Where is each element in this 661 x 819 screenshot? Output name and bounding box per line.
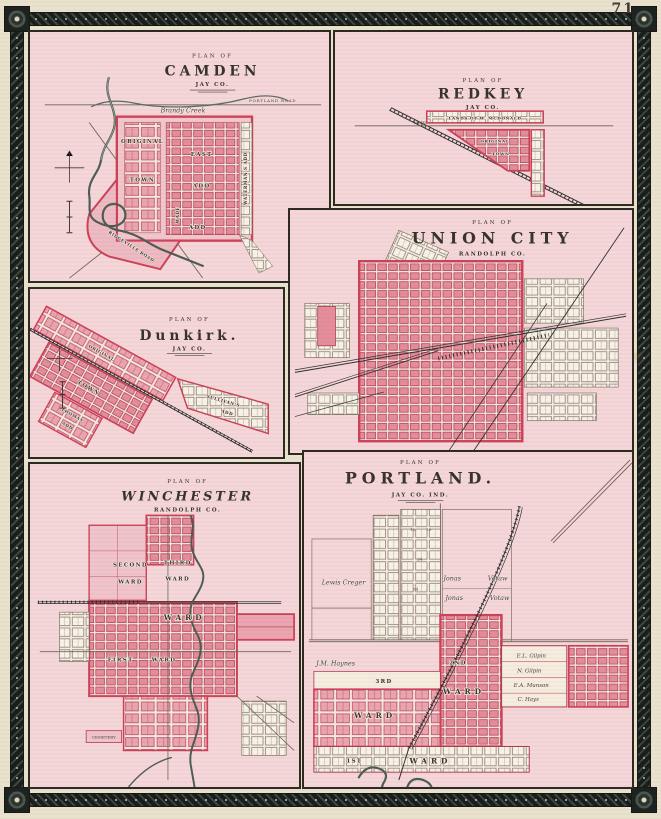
portland-label-3rd-ward: WARD: [353, 711, 396, 720]
camden-road-label: PORTLAND ROAD: [249, 98, 296, 103]
portland-label-jonas-b: Jonas: [443, 594, 463, 602]
winchester-label-third-ward: WARD: [164, 577, 190, 583]
winchester-cemetery: CEMETERY: [86, 731, 121, 743]
portland-label-n-gilpin: N. Gilpin: [516, 668, 542, 674]
camden-title-text: CAMDEN: [165, 63, 261, 79]
winchester-label-first-ward: WARD: [151, 658, 177, 664]
panel-union-city: PLAN OF UNION CITY RANDOLPH CO.: [288, 208, 634, 455]
winchester-label-ward: WARD: [163, 613, 206, 622]
winchester-plat: [60, 515, 295, 755]
panel-dunkirk: PLAN OF Dunkirk. JAY CO. ORIGINAL TOWN T…: [28, 287, 285, 459]
portland-title-text: PORTLAND.: [345, 469, 496, 488]
winchester-plan-of: PLAN OF: [167, 479, 208, 485]
redkey-plat: [427, 111, 544, 196]
portland-label-1st: 1ST: [346, 758, 362, 764]
portland-label-2nd-ward: WARD: [442, 687, 485, 696]
winchester-label-third: THIRD: [164, 561, 192, 567]
portland-label-ea-munson: E.A. Munson: [513, 683, 550, 689]
winchester-label-second-ward: WARD: [117, 580, 143, 586]
portland-label-lewis-creger: Lewis Creger: [321, 578, 367, 586]
camden-subtitle: JAY CO.: [195, 82, 230, 88]
dunkirk-sullivans-add: SULLIVAN'S ADD: [178, 379, 269, 434]
dunkirk-plan-of: PLAN OF: [169, 317, 210, 323]
redkey-label-original: ORIGINAL: [480, 138, 509, 143]
camden-label-wade: WADE: [175, 207, 180, 225]
winchester-label-cemetery: CEMETERY: [92, 735, 116, 740]
camden-label-town: TOWN: [130, 178, 155, 184]
redkey-label-town: TOWN: [492, 151, 509, 156]
camden-label-east: EAST: [191, 152, 213, 158]
union-city-plat: [305, 230, 618, 441]
portland-map: PLAN OF PORTLAND. JAY CO. IND.: [304, 452, 632, 787]
portland-label-2nd: 2ND: [449, 660, 467, 666]
portland-label-1st-ward: WARD: [408, 756, 451, 765]
union-city-title-text: UNION CITY: [412, 228, 574, 247]
camden-label-east-add: ADD: [192, 184, 211, 190]
union-city-subtitle: RANDOLPH CO.: [459, 251, 527, 257]
portland-label-el-gilpin: E.L. Gilpin: [516, 654, 547, 660]
border-corner-ornament: [4, 787, 30, 813]
winchester-label-first: FIRST: [108, 658, 134, 664]
lot-number: 54: [413, 586, 419, 591]
dunkirk-title-text: Dunkirk.: [140, 328, 240, 344]
portland-subtitle: JAY CO. IND.: [391, 492, 450, 498]
dunkirk-plat: ORIGINAL TOWN THOMAS ADD: [30, 295, 266, 457]
winchester-title-text: WINCHESTER: [121, 490, 254, 505]
camden-compass-rose: [55, 151, 85, 182]
redkey-subtitle: JAY CO.: [465, 105, 500, 111]
camden-creek-label: Brandy Creek: [160, 107, 206, 115]
redkey-plan-of: PLAN OF: [462, 78, 503, 84]
camden-label-watermans: WATERMAN'S ADD: [243, 152, 248, 206]
camden-label-original: ORIGINAL: [121, 139, 164, 145]
redkey-label-lands: LANDS OF W. MCDONALD: [448, 115, 521, 120]
page-number: 71: [612, 1, 635, 17]
border-band-bottom: [10, 793, 651, 807]
scale-bar: [67, 201, 73, 232]
winchester-title: PLAN OF WINCHESTER RANDOLPH CO.: [121, 479, 254, 514]
lot-number: 18: [410, 527, 416, 532]
portland-label-c-hays: C. Hays: [518, 697, 539, 703]
lot-number: 34: [417, 557, 423, 562]
panel-redkey: PLAN OF REDKEY JAY CO. MAIN LANDS OF W. …: [333, 30, 634, 206]
winchester-subtitle: RANDOLPH CO.: [154, 507, 221, 513]
portland-label-jonas-a: Jonas: [441, 574, 461, 582]
union-city-map: PLAN OF UNION CITY RANDOLPH CO.: [290, 210, 632, 453]
camden-map: PLAN OF CAMDEN JAY CO. PORTLAND ROAD Bra…: [30, 32, 329, 281]
border-corner-ornament: [631, 787, 657, 813]
winchester-map: PLAN OF WINCHESTER RANDOLPH CO.: [30, 464, 299, 787]
portland-title: PLAN OF PORTLAND. JAY CO. IND.: [345, 460, 496, 503]
camden-title: PLAN OF CAMDEN JAY CO.: [165, 54, 261, 92]
redkey-title-text: REDKEY: [438, 87, 528, 103]
redkey-label-main: MAIN: [414, 120, 426, 125]
border-corner-ornament: [4, 6, 30, 32]
lot-number: 19: [426, 527, 432, 532]
winchester-label-second: SECOND: [113, 563, 148, 569]
portland-plan-of: PLAN OF: [400, 460, 441, 466]
panel-portland: PLAN OF PORTLAND. JAY CO. IND.: [302, 450, 634, 789]
portland-label-3rd: 3RD: [375, 679, 392, 685]
portland-label-votaw-a: Votaw: [488, 574, 508, 582]
camden-plan-of: PLAN OF: [192, 54, 233, 60]
union-city-plan-of: PLAN OF: [472, 220, 513, 226]
camden-label-wade-add: ADD: [188, 225, 207, 231]
dunkirk-subtitle: JAY CO.: [172, 347, 207, 353]
dunkirk-title: PLAN OF Dunkirk. JAY CO.: [140, 317, 240, 355]
portland-label-jm-haynes: J.M. Haynes: [314, 659, 356, 667]
border-band-top: [10, 12, 651, 26]
panel-camden: PLAN OF CAMDEN JAY CO. PORTLAND ROAD Bra…: [28, 30, 331, 283]
flourish: [190, 90, 235, 92]
portland-label-votaw-b: Votaw: [490, 594, 510, 602]
dunkirk-map: PLAN OF Dunkirk. JAY CO. ORIGINAL TOWN T…: [30, 289, 283, 457]
panel-winchester: PLAN OF WINCHESTER RANDOLPH CO.: [28, 462, 301, 789]
flourish: [167, 353, 212, 355]
border-band-right: [637, 12, 651, 807]
redkey-map: PLAN OF REDKEY JAY CO. MAIN LANDS OF W. …: [335, 32, 632, 204]
flourish: [398, 500, 443, 502]
redkey-title: PLAN OF REDKEY JAY CO.: [438, 78, 528, 114]
border-band-left: [10, 12, 24, 807]
atlas-sheet: 71 PLAN OF CAMDEN JAY CO. PORTLAND ROAD …: [0, 0, 661, 819]
